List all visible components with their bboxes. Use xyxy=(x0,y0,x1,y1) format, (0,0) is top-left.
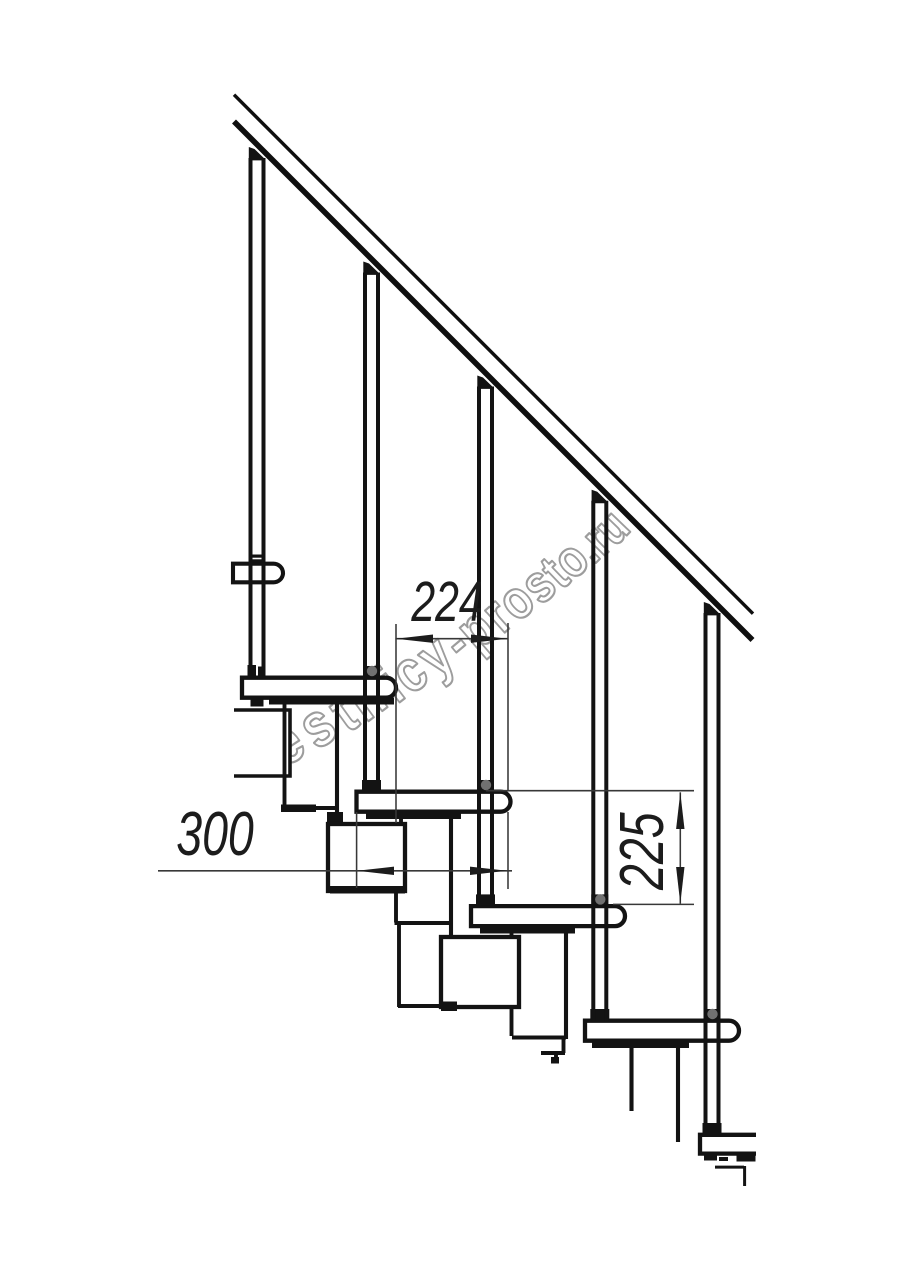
svg-text:224: 224 xyxy=(410,569,482,633)
svg-text:300: 300 xyxy=(176,798,254,868)
svg-text:225: 225 xyxy=(606,812,676,891)
